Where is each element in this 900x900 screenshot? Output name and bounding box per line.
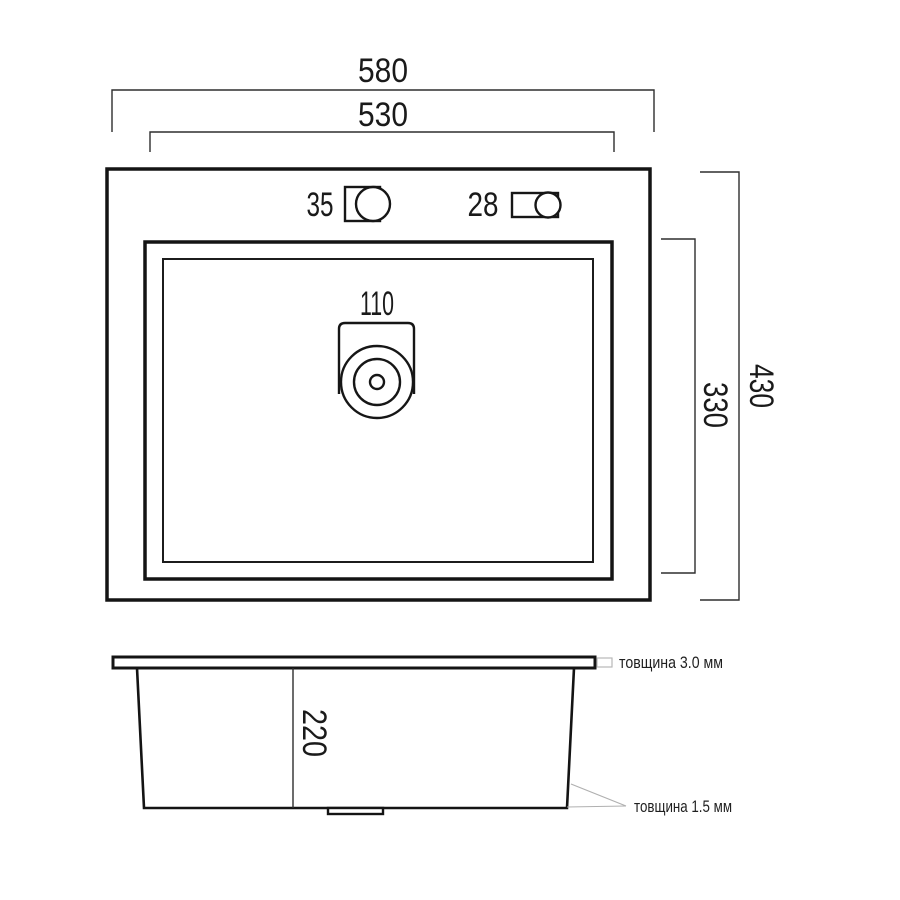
- dim-height-inner-label: 330: [696, 382, 734, 428]
- dim-width-outer-label: 580: [358, 52, 408, 90]
- dim-depth-label: 220: [295, 709, 333, 757]
- bowl-profile: [137, 668, 574, 808]
- technical-drawing-page: 580 530 430 330 35 28 110: [0, 0, 900, 900]
- dim-height-outer-label: 430: [742, 364, 780, 408]
- dim-width-inner-label: 530: [358, 96, 408, 134]
- drain-stub: [328, 808, 383, 814]
- hole-right-circle: [536, 193, 561, 218]
- drain-label: 110: [360, 285, 394, 323]
- dim-bracket-width-inner: [150, 132, 614, 152]
- hole-left-circle: [356, 187, 390, 221]
- wall-thickness-note: товщина 1.5 мм: [634, 797, 732, 816]
- side-view: 220 товщина 3.0 мм товщина 1.5 мм: [113, 653, 732, 816]
- rim-thickness-note: товщина 3.0 мм: [619, 653, 723, 672]
- dim-bracket-height-inner: [661, 239, 695, 573]
- rim-profile: [113, 657, 595, 668]
- top-view: 580 530 430 330 35 28 110: [107, 52, 780, 600]
- rim-thickness-chip: [597, 658, 612, 667]
- wall-thickness-leader-lower: [567, 806, 626, 807]
- drain-outer-circle: [341, 346, 413, 418]
- sink-technical-drawing: 580 530 430 330 35 28 110: [0, 0, 900, 900]
- hole-right-label: 28: [468, 186, 499, 224]
- wall-thickness-leader-upper: [571, 784, 626, 806]
- hole-left-label: 35: [307, 186, 334, 224]
